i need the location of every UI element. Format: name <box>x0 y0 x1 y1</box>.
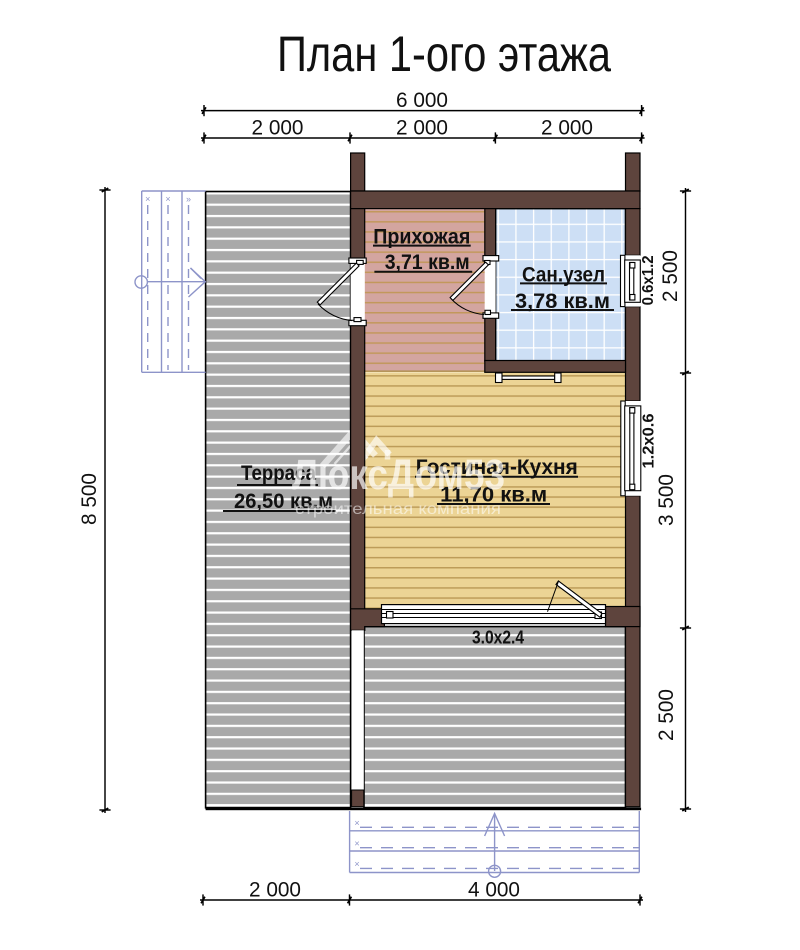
svg-text:8 500: 8 500 <box>78 473 101 525</box>
svg-text:План 1-ого этажа: План 1-ого этажа <box>277 26 611 82</box>
svg-text:2 500: 2 500 <box>659 250 682 302</box>
svg-text:строительная компания: строительная компания <box>295 501 501 518</box>
svg-text:4 000: 4 000 <box>468 879 520 902</box>
svg-text:×: × <box>354 839 359 849</box>
svg-text:2 000: 2 000 <box>396 117 448 140</box>
svg-text:ЛюксДом53: ЛюксДом53 <box>292 451 505 499</box>
svg-text:2 500: 2 500 <box>655 689 678 741</box>
svg-text:2 000: 2 000 <box>541 117 593 140</box>
svg-text:3,71 кв.м: 3,71 кв.м <box>385 251 470 274</box>
svg-text:»: » <box>186 194 191 204</box>
svg-text:×: × <box>165 194 170 204</box>
svg-text:×: × <box>354 818 359 828</box>
svg-text:×: × <box>354 859 359 869</box>
svg-text:1.2x0.6: 1.2x0.6 <box>641 413 658 468</box>
svg-text:2 000: 2 000 <box>252 117 304 140</box>
svg-text:3.0x2.4: 3.0x2.4 <box>472 627 525 648</box>
svg-text:0.6x1.2: 0.6x1.2 <box>640 255 657 305</box>
svg-text:3 500: 3 500 <box>655 474 678 526</box>
svg-text:6 000: 6 000 <box>396 89 448 112</box>
svg-text:2 000: 2 000 <box>249 879 301 902</box>
svg-text:×: × <box>145 194 150 204</box>
